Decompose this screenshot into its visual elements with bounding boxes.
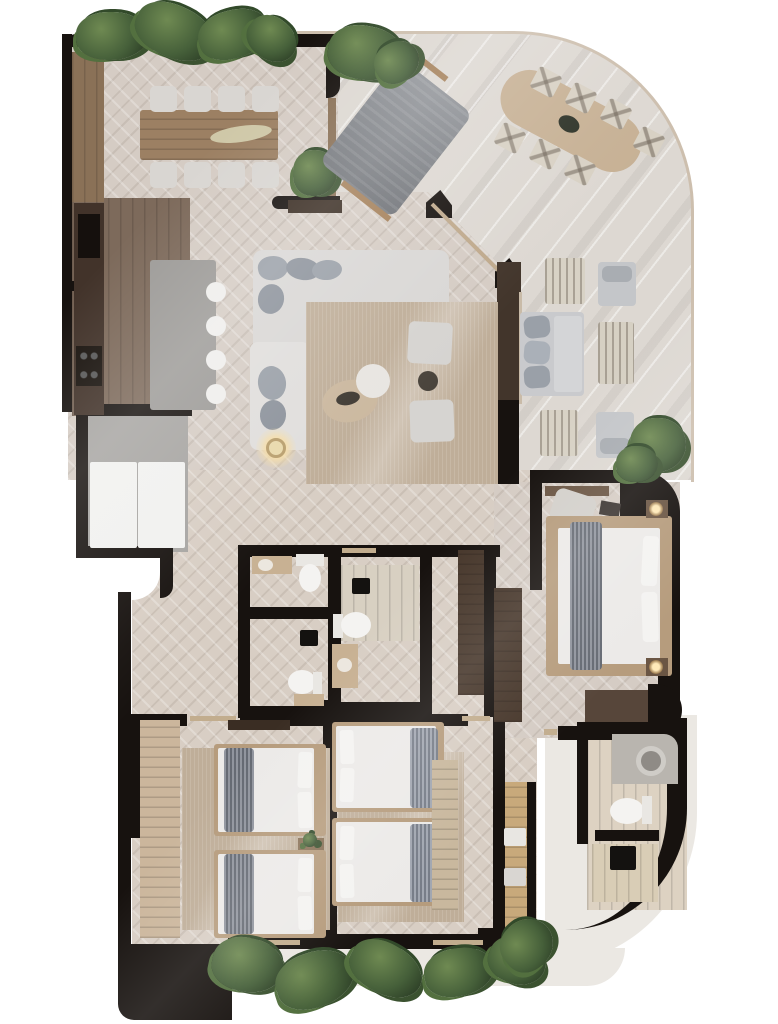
wall-pantry-right	[527, 782, 536, 934]
floor-lamp-base	[266, 438, 286, 458]
wall-laundry-left	[76, 404, 88, 558]
armchair-2	[409, 399, 454, 443]
bench-bedroom3	[432, 760, 458, 910]
bed2a-pillow-1	[297, 752, 312, 788]
outdoor-sofa-pillow-2	[523, 340, 551, 365]
threshold-bedroom3-door	[462, 716, 490, 721]
bed3a-pillow-2	[339, 768, 354, 802]
lamp-master-2	[649, 660, 663, 674]
threshold-bottom-right-door	[433, 940, 483, 945]
bath3-drain	[300, 630, 318, 646]
wall-bath2-bottom	[238, 706, 340, 718]
outdoor-sofa-pillow-3	[523, 365, 550, 389]
dining-wood-strip	[72, 52, 104, 202]
dining-chair-2	[184, 86, 211, 112]
bed2a-throw	[224, 748, 254, 832]
dining-chair-8	[252, 162, 279, 188]
bar-stool-1	[206, 282, 226, 302]
bar-stool-4	[206, 384, 226, 404]
bed2b-pillow-2	[297, 896, 312, 930]
bath4-toilet-bowl	[610, 798, 644, 824]
bath2-toilet-bowl	[341, 612, 371, 638]
bath3-toilet-bowl	[288, 670, 316, 694]
wall-bath2-left	[238, 612, 250, 718]
bed3b-pillow-1	[339, 826, 354, 860]
bed2a-pillow-2	[297, 792, 312, 828]
lounge-cushion-chair-1-pillow	[602, 266, 632, 282]
armchair-1	[407, 321, 453, 365]
lounge-slat-chair-1	[545, 258, 585, 304]
threshold-master-door	[544, 729, 557, 735]
wall-bath3-bottom	[328, 702, 432, 714]
entry-notch	[62, 558, 160, 600]
bed3a-pillow-1	[339, 730, 354, 764]
bar-stool-2	[206, 316, 226, 336]
bath4-drain	[610, 846, 636, 870]
kitchen-cooktop	[78, 214, 100, 258]
bed-master-throw	[570, 522, 602, 670]
wardrobe-bedroom2	[140, 720, 180, 938]
bed2b-throw	[224, 854, 254, 934]
bar-stool-3	[206, 350, 226, 370]
threshold-bath-hall	[342, 548, 376, 553]
washer	[90, 462, 137, 548]
kitchen-range	[76, 346, 102, 386]
console-bedroom2	[228, 720, 290, 730]
dining-chair-5	[150, 162, 177, 188]
outdoor-sofa-pillow-1	[523, 315, 551, 340]
wall-master-left	[530, 470, 542, 590]
side-table-dark	[418, 371, 438, 391]
plant-nightstand	[303, 833, 317, 847]
dining-chair-4	[252, 86, 279, 112]
bath1-sink	[258, 559, 273, 571]
floorplan	[0, 0, 778, 1024]
dining-chair-3	[218, 86, 245, 112]
bath2-sink	[337, 658, 352, 672]
coffee-table-round	[356, 364, 390, 398]
dining-chair-1	[150, 86, 177, 112]
bath4-basin-ring	[641, 751, 661, 771]
bath1-toilet-bowl	[299, 564, 321, 592]
bed3b-pillow-2	[339, 864, 354, 898]
bed2b-pillow-1	[297, 858, 312, 892]
wall-left-upper	[62, 34, 72, 412]
bath4-toilet-tank	[642, 796, 652, 824]
cabinet-living-right	[497, 262, 521, 404]
dryer	[138, 462, 185, 548]
closet-hall-dark	[458, 550, 484, 695]
dining-chair-7	[218, 162, 245, 188]
bath2-drain	[352, 578, 370, 594]
bed-master-pillow-1	[641, 536, 660, 587]
dining-chair-6	[184, 162, 211, 188]
lamp-master-1	[649, 502, 663, 516]
bath3-toilet-tank	[313, 672, 322, 694]
wall-bedroom3-right	[493, 714, 505, 940]
lounge-slat-table	[598, 322, 634, 384]
bed-master-pillow-2	[641, 592, 659, 643]
lounge-slat-chair-2	[540, 410, 578, 456]
pantry-appliance-1	[504, 828, 526, 846]
wall-entry-post	[160, 546, 173, 598]
sideboard-living	[288, 200, 342, 213]
wall-bath3-right	[420, 557, 432, 714]
wardrobe-master	[494, 588, 522, 722]
pantry-appliance-2	[504, 868, 526, 886]
bath3-vanity	[294, 694, 324, 706]
wall-living-right	[497, 400, 519, 484]
outdoor-sofa-seat	[554, 316, 582, 392]
kitchen-island	[150, 260, 216, 410]
wall-bath1-bottom	[238, 607, 340, 619]
